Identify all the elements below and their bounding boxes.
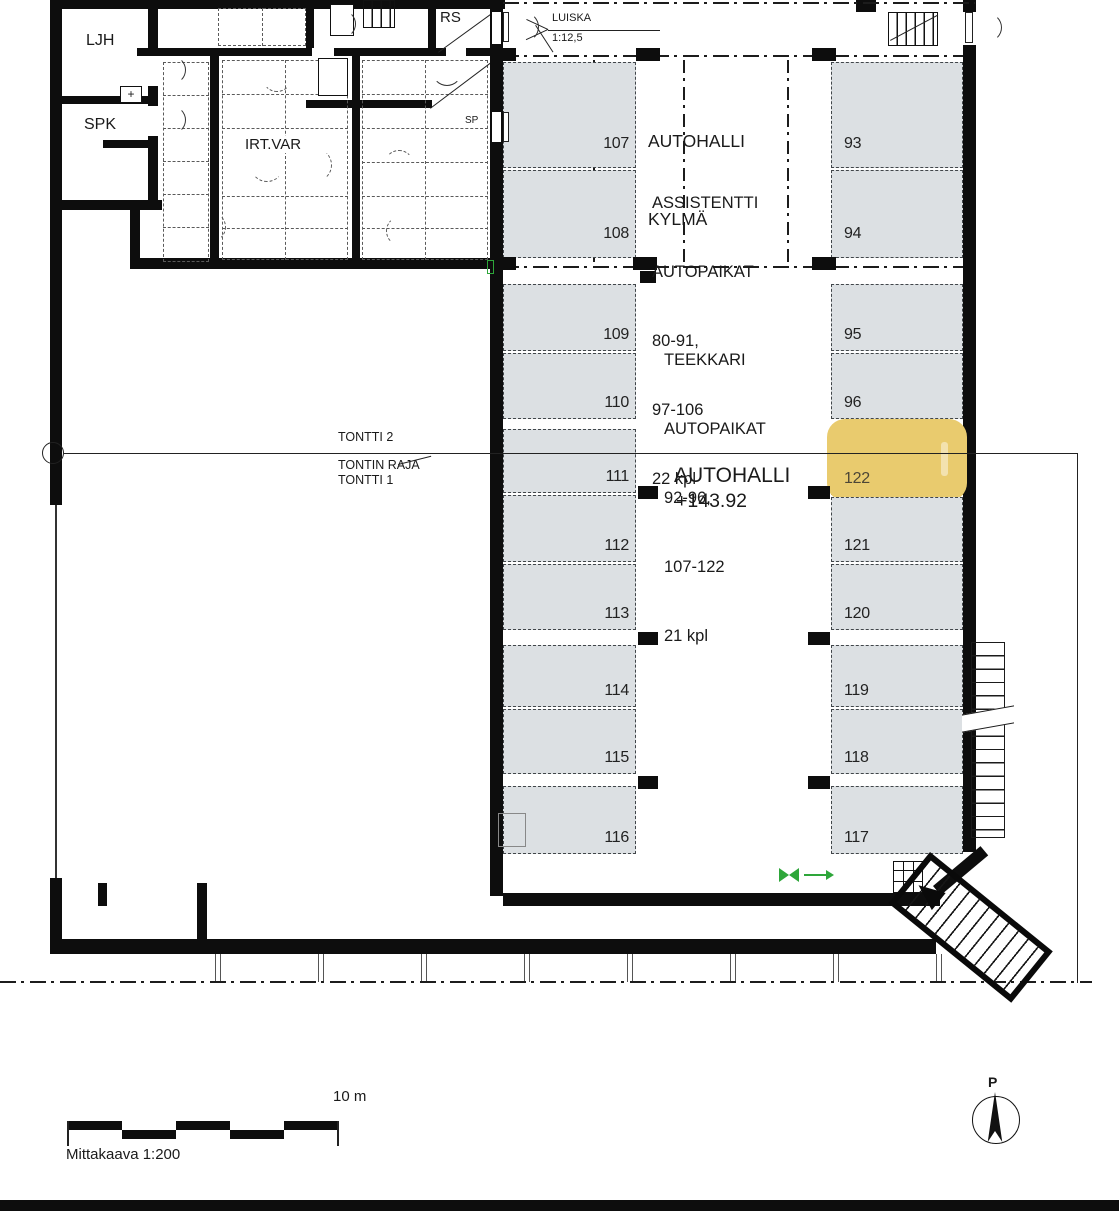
wall-stub — [197, 883, 207, 941]
grid-tick — [730, 954, 736, 982]
north-label: P — [988, 1074, 997, 1090]
grid-tick — [421, 954, 427, 982]
garage-bottom-wall — [503, 893, 940, 906]
cage-door-arc — [386, 216, 416, 246]
door-arc — [432, 56, 462, 86]
property-line — [64, 453, 1078, 454]
pillar — [808, 776, 830, 789]
wall — [428, 0, 436, 56]
utility-box — [498, 813, 526, 847]
label-tontti2: TONTTI 2 — [338, 430, 393, 444]
pillar — [812, 48, 836, 61]
stair-top-middle — [363, 0, 395, 28]
scale-distance: 10 m — [333, 1088, 366, 1105]
stall-110: 110 — [503, 353, 636, 419]
ramp-label: LUISKA — [552, 12, 591, 24]
hall-level: +143.92 — [676, 490, 747, 513]
pillar — [496, 257, 516, 270]
grid-tick — [833, 954, 839, 982]
stall-108: 108 — [503, 170, 636, 258]
cage-door-arc — [250, 148, 284, 182]
sheet-bottom-border — [0, 1200, 1119, 1211]
cage-door-arc — [196, 212, 226, 242]
stall-93: 93 — [831, 62, 963, 168]
stall-118: 118 — [831, 709, 963, 774]
stall-120: 120 — [831, 564, 963, 630]
stall-119: 119 — [831, 645, 963, 707]
floor-plan-sheet: + LJH SPK IRT.VAR RS SP LUIS — [0, 0, 1119, 1211]
stall-113: 113 — [503, 564, 636, 630]
pillar — [638, 776, 658, 789]
door-leaf — [965, 12, 973, 43]
electrical-box: + — [120, 86, 142, 103]
wall — [103, 140, 148, 148]
wall — [306, 0, 314, 54]
boundary-point-circle — [42, 442, 64, 464]
site-bottom-wall — [50, 939, 936, 954]
stall-114: 114 — [503, 645, 636, 707]
grid-tick — [318, 954, 324, 982]
exit-arrow — [804, 874, 828, 876]
stall-112: 112 — [503, 495, 636, 562]
cage-door-arc — [298, 148, 332, 182]
door-arc — [328, 10, 356, 38]
door-arc — [973, 13, 1002, 42]
room-label-irtvar: IRT.VAR — [243, 136, 303, 153]
pillar — [812, 257, 836, 270]
cage-door-arc — [384, 150, 414, 180]
exit-marker-icon — [789, 868, 799, 882]
pillar — [808, 486, 830, 499]
room-label-spk: SPK — [84, 116, 116, 134]
stall-117: 117 — [831, 786, 963, 854]
stall-95: 95 — [831, 284, 963, 351]
door-leaf — [503, 112, 509, 142]
stall-109: 109 — [503, 284, 636, 351]
room-label-sp: SP — [463, 115, 480, 126]
room-label-rs: RS — [440, 9, 461, 26]
pillar — [638, 632, 658, 645]
door-arc — [158, 106, 186, 134]
ramp-top-line — [503, 2, 975, 4]
label-tontti1: TONTTI 1 — [338, 473, 393, 487]
door-arc — [158, 56, 186, 84]
stall-94: 94 — [831, 170, 963, 258]
site-boundary-line — [55, 505, 57, 881]
door-arc — [509, 12, 539, 42]
door-leaf — [503, 12, 509, 42]
ramp-slope: 1:12,5 — [552, 32, 583, 44]
direction-arrow — [912, 877, 946, 910]
stall-121: 121 — [831, 497, 963, 562]
stall-107: 107 — [503, 62, 636, 168]
grid-tick — [524, 954, 530, 982]
green-marker — [487, 260, 494, 274]
property-line-vertical — [1077, 453, 1078, 983]
wall — [352, 52, 360, 264]
wall — [50, 0, 62, 505]
fixture — [318, 58, 348, 96]
scale-label: Mittakaava 1:200 — [66, 1146, 180, 1163]
wall — [50, 200, 162, 210]
grid-tick — [215, 954, 221, 982]
plus-symbol: + — [127, 87, 134, 101]
label-tontin-raja: TONTIN RAJA — [338, 458, 420, 472]
stall-122-highlighted: 122 — [831, 429, 963, 495]
room-label-ljh: LJH — [86, 32, 114, 50]
stall-111: 111 — [503, 429, 636, 493]
cage-door-arc — [262, 62, 292, 92]
pillar — [498, 48, 516, 61]
grid-tick — [936, 954, 942, 982]
exterior-stair — [971, 642, 1005, 838]
pillar — [808, 632, 830, 645]
pillar — [636, 48, 660, 61]
stall-115: 115 — [503, 709, 636, 774]
hall-name: AUTOHALLI — [674, 464, 790, 488]
stall-96: 96 — [831, 353, 963, 419]
wall-stub — [98, 883, 107, 906]
road-centerline — [0, 981, 1092, 983]
exit-marker-icon — [779, 868, 789, 882]
ramp-bottom-line — [503, 55, 963, 57]
grid-tick — [627, 954, 633, 982]
exit-arrow-head — [826, 870, 834, 880]
